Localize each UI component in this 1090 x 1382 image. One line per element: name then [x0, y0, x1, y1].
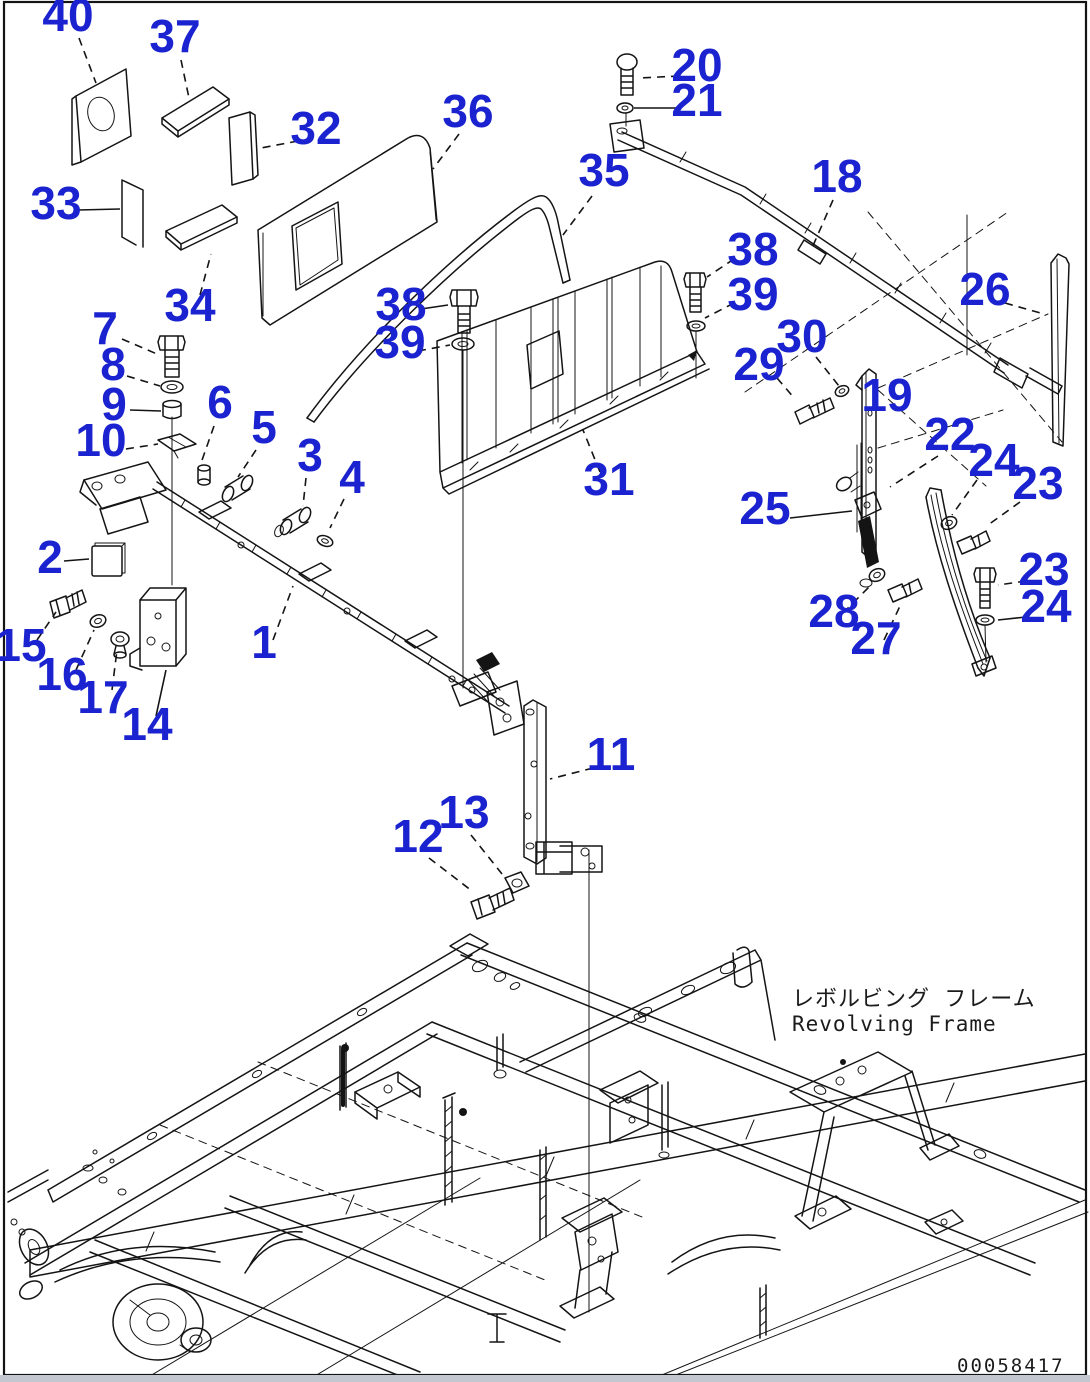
callout-30: 30: [776, 310, 827, 362]
callout-leader-4: [330, 499, 344, 528]
part-27-bolt: [888, 579, 922, 602]
callout-leader-37: [181, 60, 189, 98]
callout-37: 37: [149, 10, 200, 62]
callout-leader-10: [126, 444, 158, 449]
callout-layer: 4037323633342021351826383938397891065342…: [0, 0, 1072, 891]
callout-3: 3: [297, 429, 323, 481]
callout-leader-5: [238, 450, 256, 477]
callout-39: 39: [374, 316, 425, 368]
callout-leader-36: [433, 134, 459, 169]
callout-leader-22: [890, 456, 938, 487]
callout-36: 36: [442, 85, 493, 137]
callout-13: 13: [438, 786, 489, 838]
part-4-washer: [316, 534, 334, 549]
callout-leader-7: [122, 339, 157, 354]
part-20-bolt: [617, 54, 637, 95]
callout-27: 27: [850, 612, 901, 664]
diagram-page: 4037323633342021351826383938397891065342…: [0, 0, 1090, 1382]
callout-leader-2: [64, 559, 89, 561]
callout-19: 19: [861, 369, 912, 421]
part-16-washer: [88, 613, 107, 630]
callout-33: 33: [30, 177, 81, 229]
part-12-bolt: [471, 888, 514, 919]
callout-leader-12: [429, 858, 472, 891]
part-23-bolt-upper: [957, 531, 990, 554]
callout-18: 18: [811, 150, 862, 202]
callout-leader-25: [790, 511, 852, 518]
part-24-washer-upper: [939, 514, 959, 532]
part-14-bracket: [130, 588, 186, 670]
part-10-clip: [158, 417, 196, 585]
drawing-number: 00058417: [957, 1355, 1065, 1377]
part-38-bolt-left: [450, 290, 478, 333]
callout-leader-18: [812, 200, 833, 248]
callout-5: 5: [251, 401, 277, 453]
part-5-spacer: [220, 474, 255, 504]
parts-diagram: 4037323633342021351826383938397891065342…: [0, 0, 1090, 1382]
part-29-bolt: [795, 398, 834, 424]
callout-2: 2: [37, 531, 63, 583]
callout-1: 1: [251, 616, 277, 668]
callout-4: 4: [339, 451, 365, 503]
part-9-nut: [163, 401, 181, 419]
part-13-washer: [505, 872, 529, 893]
part-7-bolt: [158, 336, 185, 377]
callout-leader-13: [471, 835, 502, 874]
callout-leader-9: [130, 410, 161, 411]
part-17-plug: [111, 632, 129, 658]
callout-12: 12: [392, 810, 443, 862]
callout-14: 14: [121, 698, 173, 750]
drawing-border: [4, 2, 1086, 1375]
callout-39: 39: [727, 268, 778, 320]
callout-leader-8: [127, 376, 160, 386]
part-24-washer-lower: [976, 615, 994, 662]
callout-32: 32: [290, 102, 341, 154]
part-39-washer-right: [687, 321, 705, 378]
footer-strip: [0, 1375, 1090, 1382]
part-23-bolt-lower: [974, 568, 996, 608]
callout-6: 6: [207, 376, 233, 428]
part-32-plate: [229, 112, 258, 185]
part-38-bolt-right: [684, 273, 706, 312]
part-39-washer-left: [452, 338, 474, 688]
part-40-cover-plate: [72, 69, 131, 165]
part-33-sheet: [122, 180, 143, 247]
callout-23: 23: [1012, 457, 1063, 509]
callout-25: 25: [739, 482, 790, 534]
part-28-washer: [867, 566, 887, 584]
callout-21: 21: [671, 74, 722, 126]
callout-24: 24: [1020, 580, 1072, 632]
callout-34: 34: [164, 279, 216, 331]
callout-leader-33: [78, 209, 120, 210]
callout-11: 11: [587, 728, 636, 780]
part-37-plate: [162, 87, 229, 137]
callout-leader-35: [563, 196, 592, 235]
callout-40: 40: [42, 0, 93, 41]
part-8-washer: [161, 381, 183, 393]
part-1-support-rail: [80, 462, 524, 735]
title-english: Revolving Frame: [792, 1012, 997, 1036]
part-34-plate: [166, 205, 237, 250]
part-30-washer: [834, 384, 851, 399]
callout-31: 31: [583, 453, 634, 505]
callout-leader-40: [79, 38, 96, 83]
callout-leader-3: [303, 478, 306, 506]
part-26-strip: [1051, 254, 1069, 446]
callout-leader-6: [201, 426, 214, 463]
title-japanese: レボルビング フレーム: [792, 987, 1036, 1012]
callout-10: 10: [75, 414, 126, 466]
callout-35: 35: [578, 144, 629, 196]
part-6-pin: [198, 465, 210, 485]
callout-26: 26: [959, 263, 1010, 315]
part-2-block: [92, 543, 125, 576]
part-3-spacer: [273, 506, 313, 538]
callout-leader-26: [1005, 303, 1044, 314]
